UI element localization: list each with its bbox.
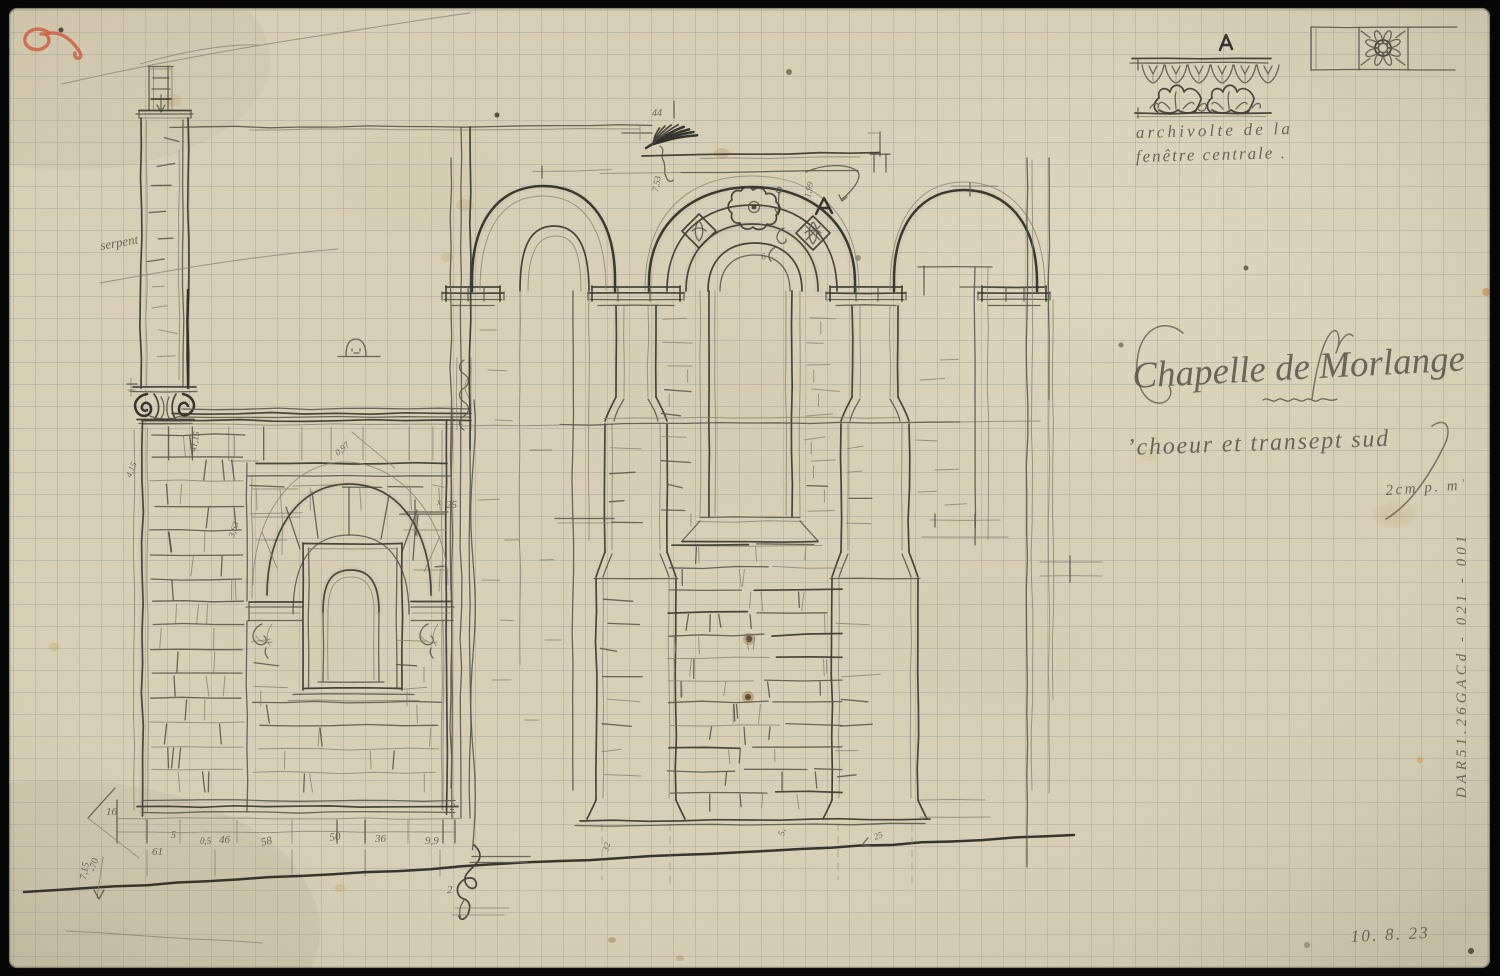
svg-text:36: 36 <box>374 833 387 845</box>
svg-text:0,5: 0,5 <box>200 836 212 846</box>
svg-text:9,9: 9,9 <box>425 835 439 847</box>
svg-text:44: 44 <box>652 108 662 119</box>
svg-text:46: 46 <box>219 834 231 846</box>
svg-text:2: 2 <box>447 884 453 896</box>
svg-text:50: 50 <box>329 830 342 843</box>
svg-text:25: 25 <box>446 499 458 511</box>
svg-text:fenêtre centrale .: fenêtre centrale . <box>1136 143 1287 166</box>
svg-text:5: 5 <box>171 830 176 841</box>
svg-text:16: 16 <box>106 806 118 818</box>
svg-text:x: x <box>436 497 441 507</box>
svg-text:2: 2 <box>450 802 455 813</box>
svg-text:DAR51.26GACd - 021 - 001: DAR51.26GACd - 021 - 001 <box>1454 532 1470 799</box>
svg-text:61: 61 <box>152 846 163 858</box>
